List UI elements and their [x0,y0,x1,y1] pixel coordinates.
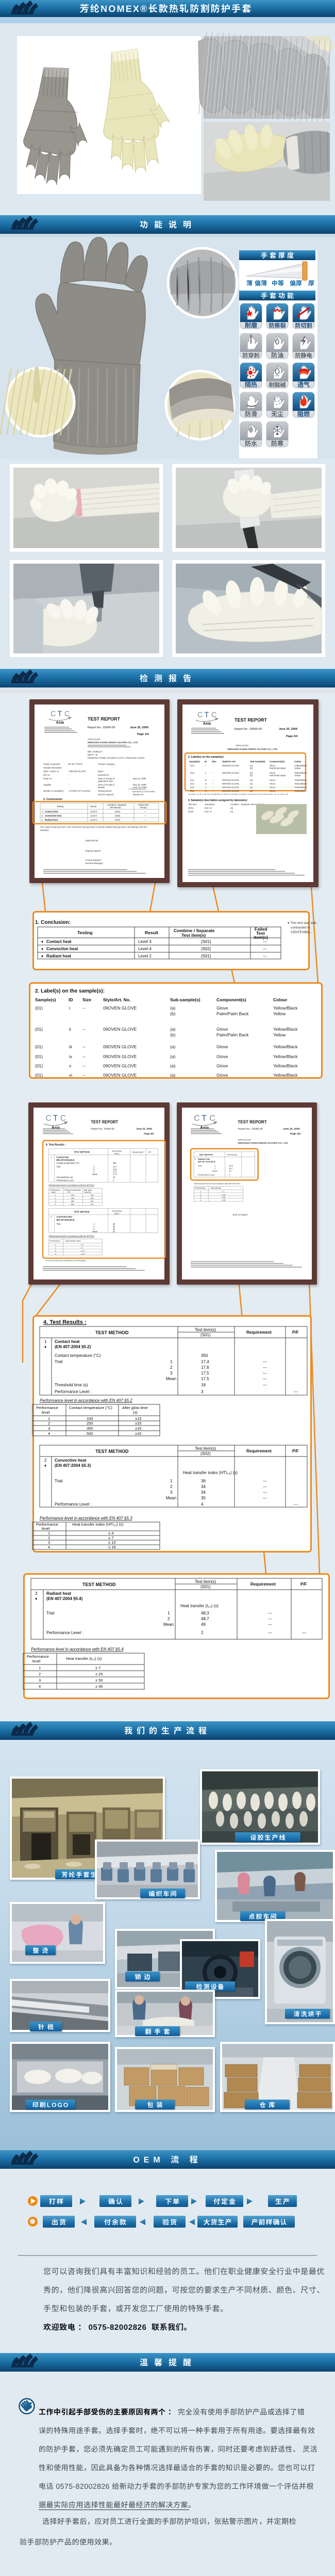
svg-text:Glove: Glove [216,1005,228,1011]
svg-text:i: i [69,1005,70,1011]
svg-text:≥15: ≥15 [135,1421,141,1426]
svg-text:≥ 10: ≥ 10 [108,1540,116,1545]
svg-text:Requirement: Requirement [246,1449,272,1453]
svg-text:(b): (b) [170,1032,176,1037]
svg-text:17,5: 17,5 [113,1173,117,1176]
svg-text:4: 4 [201,1502,204,1507]
svg-text:2: 2 [55,1197,56,1199]
svg-text:Palm/Palm Back: Palm/Palm Back [216,1011,249,1016]
svg-text:Trial: Trial [198,1165,202,1167]
svg-text:level: level [42,1526,50,1531]
svg-text:09OVEN GLOVE: 09OVEN GLOVE [222,790,239,792]
svg-text:Report No.: 03090-09: Report No.: 03090-09 [238,1127,262,1130]
svg-text:(a): (a) [250,786,253,789]
svg-text:Style/Art. No.: Style/Art. No. [103,997,130,1002]
svg-text:3: 3 [48,1426,50,1431]
svg-text:2: 2 [201,1630,204,1635]
svg-text:TEST REPORT: TEST REPORT [238,1120,266,1125]
svg-text:P/F: P/F [148,1151,152,1153]
svg-text:17,4: 17,4 [201,1359,209,1364]
svg-text:Contact temperature (°C): Contact temperature (°C) [55,1353,101,1358]
svg-text:≥15: ≥15 [90,1194,93,1196]
svg-text:(01): (01) [190,786,194,789]
svg-text:Contact heat: Contact heat [56,1156,69,1158]
svg-text:EN 407 TESTS: EN 407 TESTS [68,763,83,765]
svg-text:Contact temperature (°C): Contact temperature (°C) [69,1405,112,1410]
svg-text:(S02): (S02) [114,1212,120,1214]
svg-text:Buyer :: Buyer : [98,770,105,773]
svg-text:(01): (01) [190,782,194,785]
svg-text:(01): (01) [35,1044,43,1049]
svg-text:(a): (a) [170,1027,176,1032]
svg-text:(EN 407:2004 §5.3): (EN 407:2004 §5.3) [56,1219,74,1221]
svg-text:---: --- [294,1389,298,1394]
svg-text:level: level [32,1659,41,1663]
svg-text:Level 3: Level 3 [90,810,97,813]
svg-text:1: 1 [200,1191,201,1193]
svg-text:- End of report -: - End of report - [231,1213,249,1217]
svg-text:4: 4 [39,1684,41,1689]
svg-text:Size: Size [212,760,216,763]
svg-text:iii: iii [205,779,207,781]
svg-text:(01): (01) [190,779,194,781]
svg-text:Test item(s): Test item(s) [227,1154,237,1156]
svg-text:---: --- [302,1630,306,1635]
svg-text:Order no.: Order no. [43,777,53,780]
svg-text:♦ This test was sub-contracted: ♦ This test was sub-contracted to CENTEX… [46,1260,87,1262]
svg-text:item(s): item(s) [140,806,147,809]
svg-text:iv: iv [69,1054,73,1059]
svg-text:Heat transfer: Heat transfer [210,1187,222,1189]
svg-text:≥ 18: ≥ 18 [81,1253,85,1255]
svg-text:Palm/Palm Back: Palm/Palm Back [270,774,286,777]
svg-text:--: -- [82,1054,86,1059]
svg-text:application form: application form [98,780,113,782]
svg-text:(a): (a) [250,782,253,785]
svg-text:48,7: 48,7 [229,1167,232,1170]
svg-text:Component(s): Component(s) [216,997,246,1002]
svg-text:3: 3 [35,1591,38,1596]
svg-text:♦: ♦ [42,814,43,817]
svg-text:Palm/Palm Back: Palm/Palm Back [270,767,286,770]
svg-text:4. Test Results :: 4. Test Results : [46,1144,66,1147]
svg-text:(01): (01) [35,1063,43,1068]
svg-text:June 25, 2009: June 25, 2009 [130,726,148,729]
svg-text:Sample(s): Sample(s) [205,803,215,806]
svg-text:Component(s): Component(s) [270,760,285,763]
svg-text:---: --- [144,810,147,813]
svg-text:Mean: Mean [212,1170,217,1172]
svg-text:Yellow: Yellow [273,1011,286,1016]
svg-text:T: T [202,1114,207,1123]
svg-text:---: --- [263,1496,267,1500]
svg-text:≥15: ≥15 [135,1426,141,1431]
svg-text:contracted to: contracted to [291,926,310,930]
svg-text:Convective heat: Convective heat [56,1215,72,1218]
svg-text:Page 1/4: Page 1/4 [137,733,149,736]
svg-text:Glove: Glove [216,1073,228,1078]
svg-text:Sub-sample(s): Sub-sample(s) [250,760,265,763]
svg-text:(a): (a) [170,1005,176,1011]
svg-text:(a): (a) [230,807,233,809]
svg-text:: 09OVEN GLOVE: : 09OVEN GLOVE [68,770,86,773]
svg-text:Colour: Colour [273,997,288,1002]
svg-text:2: 2 [48,1421,50,1426]
svg-text:(b): (b) [170,1011,176,1016]
svg-text:(s): (s) [133,1410,138,1415]
svg-text:Contact temperature (°C): Contact temperature (°C) [56,1162,79,1164]
svg-text:General Manager: General Manager [85,862,104,865]
svg-text:Mean: Mean [92,1173,97,1176]
svg-text:Report No.: 03090-09: Report No.: 03090-09 [91,1127,114,1130]
svg-text:(b): (b) [250,767,253,770]
svg-text:APPLICANT:: APPLICANT: [88,738,101,741]
svg-text:♦ This test was sub-: ♦ This test was sub- [288,921,317,925]
svg-text:Mean: Mean [166,1496,176,1500]
svg-text:Performance: Performance [195,1187,206,1189]
svg-text:Performance level in accordanc: Performance level in accordance with EN … [48,1235,94,1237]
svg-text:Page 4/4: Page 4/4 [290,1132,301,1135]
svg-text::: : [129,783,129,786]
svg-text:(°C): (°C) [67,1191,70,1193]
svg-text:4: 4 [48,1545,50,1549]
svg-text:09OVEN GLOVE: 09OVEN GLOVE [103,1005,137,1011]
svg-text:♦: ♦ [42,819,43,821]
svg-text:(b): (b) [250,774,253,777]
svg-text:time (s): time (s) [85,1191,91,1193]
svg-text:≥ 18: ≥ 18 [108,1545,116,1549]
svg-text:May 15, 2009: May 15, 2009 [133,777,146,780]
svg-text:---: --- [263,1484,267,1489]
svg-text:vi: vi [69,1073,72,1078]
svg-text:Performance level in accordanc: Performance level in accordance with EN … [48,1184,94,1187]
svg-text:ZHEJIANG KANGLONGDA GLOVES CO.: ZHEJIANG KANGLONGDA GLOVES CO., LTD. [227,748,278,750]
svg-text:Yellow: Yellow [294,774,301,777]
svg-text:(a): (a) [250,790,253,792]
svg-text:17,5: 17,5 [201,1377,209,1381]
svg-text::: : [129,793,129,796]
svg-text:1: 1 [44,1339,47,1344]
svg-text:Performance level in accordanc: Performance level in accordance with EN … [40,1516,132,1521]
svg-text:P/F: P/F [300,1582,307,1587]
svg-text:Performance Level :: Performance Level : [198,1174,215,1176]
svg-text:Level 2: Level 2 [90,819,97,821]
svg-text:1: 1 [55,1194,56,1196]
svg-text:36: 36 [201,1479,206,1483]
svg-text:≥ 20: ≥ 20 [95,1672,103,1676]
svg-text:--: -- [82,1005,86,1011]
svg-text:(S01): (S01) [188,807,194,809]
svg-text:CENTEXBEL.: CENTEXBEL. [291,931,312,934]
svg-text:C: C [194,1114,200,1123]
svg-text:: 6 PAIRS OF GLOVES: : 6 PAIRS OF GLOVES [68,790,91,792]
svg-text:(01): (01) [35,1073,43,1078]
svg-text:4: 4 [55,1253,56,1255]
svg-text:C: C [51,710,56,718]
svg-text:---: --- [268,1611,272,1615]
svg-text:C: C [46,1114,52,1123]
svg-text:34: 34 [201,1490,206,1495]
svg-text:Arnaud Dyduck: Arnaud Dyduck [85,859,102,861]
svg-text:(01): (01) [35,1005,43,1011]
svg-text:Testing: Testing [57,805,64,808]
svg-text:1: 1 [170,1359,173,1364]
svg-text:---: --- [263,1371,267,1375]
svg-text:Test item(s): Test item(s) [195,1327,216,1332]
svg-text:TEST METHOD: TEST METHOD [74,1210,89,1213]
svg-text:49: 49 [229,1170,231,1172]
svg-text:FENGHUI TOWN, SHANGYU CITY, ZH: FENGHUI TOWN, SHANGYU CITY, ZHEJIANG CHI… [88,757,145,759]
svg-text:09OVEN GLOVE: 09OVEN GLOVE [222,786,239,789]
svg-text:(EN 407:2004 §5.3): (EN 407:2004 §5.3) [55,1463,91,1468]
svg-text:contracted to CENTEXBEL: contracted to CENTEXBEL [132,791,156,793]
svg-text:Glove: Glove [270,779,276,781]
svg-text:Trial: Trial [56,1165,60,1168]
svg-text:---: --- [263,1383,267,1387]
svg-text:--: -- [82,1073,86,1078]
svg-text:3: 3 [39,1678,41,1683]
svg-text:35: 35 [201,1496,206,1500]
svg-text:Glove: Glove [216,1063,228,1068]
svg-text:≥15: ≥15 [90,1201,93,1203]
svg-text:2: 2 [55,1247,56,1249]
svg-text:09OVEN GLOVE: 09OVEN GLOVE [103,1073,137,1078]
svg-text:Remarks: (1) ID is used for id: Remarks: (1) ID is used for identificati… [188,793,289,795]
svg-text:Trial: Trial [55,1479,62,1483]
svg-text:---: --- [263,1365,267,1370]
svg-text:Performance Level :: Performance Level : [55,1502,92,1507]
svg-text:48,3: 48,3 [229,1165,232,1167]
svg-text:250: 250 [87,1421,93,1426]
svg-text:Performance Level :: Performance Level : [55,1389,92,1394]
svg-text:(a): (a) [170,1063,176,1068]
svg-text:(EN 407:2004 §5.4): (EN 407:2004 §5.4) [46,1596,83,1601]
svg-text:(a): (a) [250,779,253,781]
svg-text:2: 2 [44,1458,47,1463]
svg-text:Heat transfer (t₂₄) (s): Heat transfer (t₂₄) (s) [180,1604,219,1608]
svg-text:Yellow/Black: Yellow/Black [294,786,307,789]
svg-text:(EN 407:2004 §5.2): (EN 407:2004 §5.2) [55,1345,91,1349]
svg-text:1: 1 [167,1611,170,1615]
svg-text:P/F: P/F [292,1449,299,1453]
svg-text:i: i [205,764,206,767]
svg-text:2: 2 [167,1617,170,1621]
svg-text:(01): (01) [190,764,194,767]
svg-text:T: T [58,710,62,718]
svg-text:Test(s) requested :: Test(s) requested : [43,763,61,765]
svg-text:level: level [52,1191,56,1193]
svg-text:Glove: Glove [216,1027,228,1032]
svg-text:Sample(s): Sample(s) [35,997,56,1002]
svg-text:3: 3 [170,1490,173,1495]
svg-text:Radiant heat: Radiant heat [198,1158,210,1160]
svg-text:--: -- [82,1063,86,1068]
svg-text:500: 500 [87,1431,93,1436]
svg-text:Threshold time (s): Threshold time (s) [55,1383,88,1387]
svg-text:Number of sample(s): Number of sample(s) [43,790,64,792]
svg-text:Yellow/Black: Yellow/Black [294,790,307,792]
svg-text:---: --- [263,1359,267,1364]
svg-text:Trial: Trial [56,1223,60,1225]
svg-text:≥ 95: ≥ 95 [95,1684,103,1689]
svg-text:Report No.: 03090-09: Report No.: 03090-09 [88,726,115,729]
svg-text:Radiant heat: Radiant heat [45,819,58,821]
svg-text:v: v [69,1063,72,1068]
svg-text:2: 2 [200,1194,201,1196]
svg-text:sample: sample [98,786,105,789]
svg-text:Asia: Asia [52,1125,60,1130]
svg-text:1: 1 [170,1479,173,1483]
svg-text:ii: ii [69,1027,71,1032]
svg-text:T: T [205,711,209,719]
svg-text:1. Conclusion:: 1. Conclusion: [43,798,63,801]
svg-text:Result: Result [90,805,97,808]
svg-text:Glove: Glove [270,786,276,789]
svg-text:The contact heat got level 3;: The contact heat got level 3; the convec… [40,826,148,828]
svg-text:3: 3 [200,1196,201,1198]
svg-text:♦: ♦ [44,1463,46,1468]
svg-text:3: 3 [48,1540,50,1545]
svg-text:Asia: Asia [200,1125,209,1130]
svg-text:ii: ii [205,772,206,774]
svg-text:Heat transfer (t₂₄) (s): Heat transfer (t₂₄) (s) [66,1656,102,1661]
svg-text:2: 2 [170,1484,173,1489]
svg-text:09OVEN GLOVE: 09OVEN GLOVE [103,1044,137,1049]
svg-text:REGULAR: REGULAR [133,793,143,796]
svg-text:4. Test Results :: 4. Test Results : [43,1319,87,1325]
svg-text:2: 2 [229,1174,230,1176]
svg-text:Page 3/4: Page 3/4 [144,1132,154,1135]
svg-text:09OVEN GLOVE: 09OVEN GLOVE [103,1063,137,1068]
svg-text:Test item(s): Test item(s) [110,806,121,809]
svg-text:Original signed: Original signed [85,850,101,852]
svg-text:Glove: Glove [216,1054,228,1059]
svg-text:--: -- [82,1027,86,1032]
svg-text:Yellow/Black: Yellow/Black [273,1063,298,1068]
svg-text:49: 49 [201,1622,206,1627]
svg-text:Performance level in accordanc: Performance level in accordance with EN … [194,1182,241,1185]
svg-text:Yellow/Black: Yellow/Black [294,782,307,785]
svg-text:(S01): (S01) [200,1585,211,1589]
svg-text:Approved by: Approved by [85,839,98,842]
svg-text:Yellow: Yellow [273,1032,286,1037]
svg-text:17,5: 17,5 [201,1371,209,1375]
svg-text:TEST REPORT: TEST REPORT [88,716,121,722]
svg-text:---: --- [263,1479,267,1483]
svg-text:Colour: Colour [294,760,301,763]
svg-text:350: 350 [201,1353,208,1358]
svg-text:(01): (01) [190,772,194,774]
svg-text:2: 2 [214,1167,215,1170]
svg-text:June 25, 2009: June 25, 2009 [283,1127,300,1130]
svg-text:Performance: Performance [49,1240,60,1242]
svg-text:(EN 407:2004 §5.2): (EN 407:2004 §5.2) [56,1159,74,1161]
svg-text:Mean: Mean [163,1622,174,1627]
svg-text:18: 18 [113,1176,115,1178]
svg-text:Performance Level :: Performance Level : [46,1630,83,1635]
svg-text:≥ 50: ≥ 50 [95,1678,103,1683]
svg-text:Contact heat: Contact heat [55,1339,80,1344]
svg-text:Palm/Palm Back: Palm/Palm Back [216,1032,249,1037]
svg-text:Requirement: Requirement [250,1582,276,1587]
svg-text:(01): (01) [35,1054,43,1059]
svg-text:3: 3 [55,1201,56,1203]
svg-text:Size: Size [82,997,91,1002]
svg-text:Mean: Mean [92,1230,97,1233]
svg-text:(a): (a) [170,1044,176,1049]
svg-text:Test item: Test item [188,803,197,806]
svg-text:Ref no.: Ref no. [43,774,51,776]
svg-text:: -: : - [68,777,70,780]
svg-text:4: 4 [200,1199,201,1202]
svg-text:Test item(s): Test item(s) [112,1150,122,1152]
svg-text:---: --- [263,1377,267,1381]
svg-text:(a): (a) [170,1073,176,1078]
svg-text:ID: ID [69,997,73,1002]
svg-text:(S02): (S02) [115,814,121,817]
svg-text:(EN 407:2004 §5.4): (EN 407:2004 §5.4) [198,1161,215,1163]
svg-text:3: 3 [55,1250,56,1252]
svg-text:Performance: Performance [27,1654,49,1659]
svg-text:Product Category :: Product Category : [98,763,116,765]
svg-text:APPLICANT:: APPLICANT: [238,1139,251,1141]
svg-text:Heat transfer index (HTI₂₄) (s: Heat transfer index (HTI₂₄) (s) [183,1470,238,1475]
svg-text:Convective heat: Convective heat [55,1458,87,1463]
svg-text:Convective heat: Convective heat [45,814,62,817]
svg-text:Testing period: Testing period [98,790,112,792]
svg-text:Performance Level :: Performance Level : [56,1179,74,1181]
svg-text:≥ 4: ≥ 4 [108,1531,113,1535]
svg-text:100: 100 [71,1194,74,1196]
svg-text:3. Sample(s) description assig: 3. Sample(s) description assigned by lab… [188,799,248,802]
svg-text:≥ 20: ≥ 20 [222,1194,225,1196]
svg-text:(01) i-vi: (01) i-vi [205,810,212,813]
svg-text:C: C [197,711,203,719]
svg-text:♦: ♦ [44,1345,46,1349]
svg-text:Sample(s): Sample(s) [189,760,200,763]
svg-text:DEPT.: IE: DEPT.: IE [88,754,98,756]
svg-text:≥ 7: ≥ 7 [108,1535,113,1540]
svg-text:June 25, 2009: June 25, 2009 [279,728,297,731]
svg-text:--: -- [82,1044,86,1049]
svg-text:Glove: Glove [270,782,276,785]
svg-text:Heat transfer index: Heat transfer index [65,1240,80,1242]
svg-text:350: 350 [87,1426,93,1431]
svg-text:Sample description :: Sample description : [43,766,63,769]
svg-text:TEST METHOD: TEST METHOD [74,1150,89,1153]
svg-text:250: 250 [71,1197,74,1199]
svg-text:2: 2 [39,1672,41,1676]
svg-text:09OVEN GLOVE: 09OVEN GLOVE [103,1027,137,1032]
svg-text:: -: : - [68,774,70,776]
svg-text:TEST METHOD: TEST METHOD [95,1330,129,1335]
svg-text:≥ 7: ≥ 7 [81,1247,83,1249]
svg-text:Asia: Asia [56,720,64,725]
svg-text:Test item(s): Test item(s) [195,1579,216,1584]
svg-text:1: 1 [55,1244,56,1246]
svg-text:Test item(s): Test item(s) [112,1210,122,1212]
svg-text:Yellow/Black: Yellow/Black [294,779,307,781]
svg-text:1: 1 [39,1666,41,1670]
svg-text:≥ 4: ≥ 4 [81,1244,83,1246]
svg-text:Sub-sample(s): Sub-sample(s) [170,997,200,1002]
svg-text:3: 3 [195,1158,196,1160]
svg-text:Asia: Asia [203,721,211,726]
svg-text:1: 1 [214,1165,215,1167]
svg-text:Contact heat: Contact heat [45,810,58,813]
svg-text:(a): (a) [170,1054,176,1059]
svg-text:MR. SHIRLEY: MR. SHIRLEY [88,750,103,753]
